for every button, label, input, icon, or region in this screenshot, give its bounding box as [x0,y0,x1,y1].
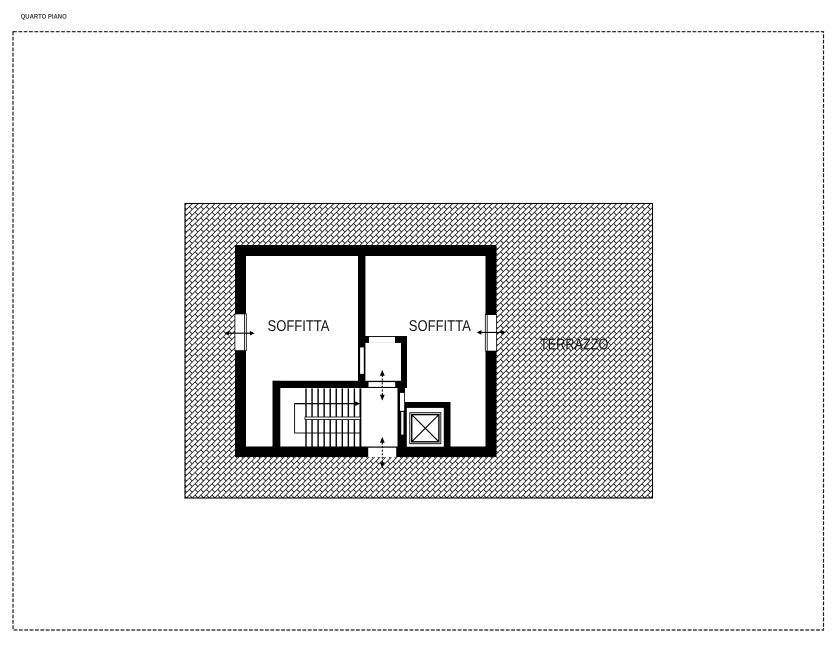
svg-text:SOFFITTA: SOFFITTA [267,318,329,335]
svg-text:TERRAZZO: TERRAZZO [540,336,609,353]
svg-text:SOFFITTA: SOFFITTA [409,318,471,335]
svg-text:QUARTO PIANO: QUARTO PIANO [21,14,67,21]
